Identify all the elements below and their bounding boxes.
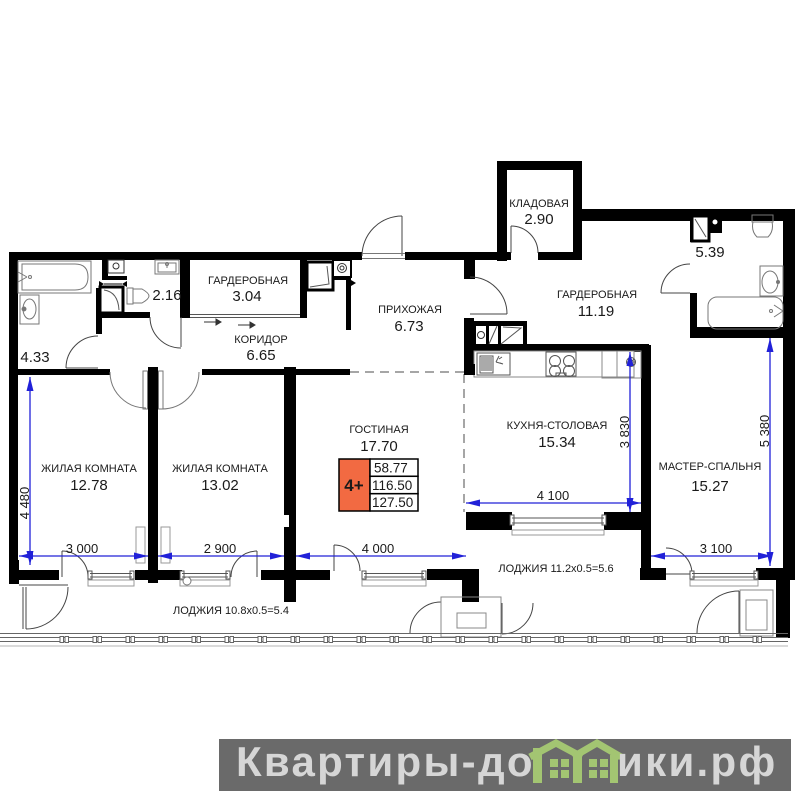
svg-text:ЛОДЖИЯ 11.2х0.5=5.6: ЛОДЖИЯ 11.2х0.5=5.6 <box>498 563 613 575</box>
svg-text:КУХНЯ-СТОЛОВАЯ: КУХНЯ-СТОЛОВАЯ <box>507 420 608 432</box>
svg-text:6.65: 6.65 <box>246 347 275 364</box>
svg-text:5.39: 5.39 <box>695 244 724 261</box>
svg-text:58.77: 58.77 <box>374 461 408 476</box>
svg-text:ЛОДЖИЯ 10.8х0.5=5.4: ЛОДЖИЯ 10.8х0.5=5.4 <box>173 605 289 617</box>
svg-text:2.90: 2.90 <box>524 211 553 228</box>
svg-text:4 100: 4 100 <box>537 488 570 503</box>
svg-text:17.70: 17.70 <box>360 438 398 455</box>
svg-text:ЖИЛАЯ КОМНАТА: ЖИЛАЯ КОМНАТА <box>172 463 268 475</box>
svg-text:Квартиры-до: Квартиры-до <box>236 738 535 785</box>
svg-text:ики.рф: ики.рф <box>617 738 778 785</box>
svg-text:127.50: 127.50 <box>372 495 413 510</box>
svg-text:11.19: 11.19 <box>578 303 614 320</box>
svg-text:4+: 4+ <box>344 476 363 495</box>
svg-text:ГАРДЕРОБНАЯ: ГАРДЕРОБНАЯ <box>557 289 637 301</box>
svg-text:МАСТЕР-СПАЛЬНЯ: МАСТЕР-СПАЛЬНЯ <box>659 461 762 473</box>
svg-text:3 100: 3 100 <box>700 541 733 556</box>
svg-text:13.02: 13.02 <box>201 477 239 494</box>
svg-text:12.78: 12.78 <box>70 477 108 494</box>
svg-text:4 480: 4 480 <box>17 487 32 520</box>
svg-text:116.50: 116.50 <box>372 478 412 493</box>
svg-text:15.34: 15.34 <box>538 434 576 451</box>
svg-text:6.73: 6.73 <box>394 318 423 335</box>
svg-text:2 900: 2 900 <box>204 541 237 556</box>
svg-text:3.04: 3.04 <box>232 288 261 305</box>
svg-text:4.33: 4.33 <box>20 349 49 366</box>
svg-text:ПРИХОЖАЯ: ПРИХОЖАЯ <box>378 304 442 316</box>
svg-text:ЖИЛАЯ КОМНАТА: ЖИЛАЯ КОМНАТА <box>41 463 137 475</box>
svg-text:3 000: 3 000 <box>66 541 99 556</box>
svg-text:4 000: 4 000 <box>362 541 395 556</box>
svg-text:ГАРДЕРОБНАЯ: ГАРДЕРОБНАЯ <box>208 275 288 287</box>
svg-text:КЛАДОВАЯ: КЛАДОВАЯ <box>509 198 569 210</box>
svg-text:3 830: 3 830 <box>617 416 632 449</box>
svg-text:15.27: 15.27 <box>691 478 729 495</box>
svg-text:ГОСТИНАЯ: ГОСТИНАЯ <box>349 424 408 436</box>
svg-text:КОРИДОР: КОРИДОР <box>234 334 287 346</box>
svg-text:2.16: 2.16 <box>152 287 181 304</box>
svg-text:5 380: 5 380 <box>757 415 772 448</box>
